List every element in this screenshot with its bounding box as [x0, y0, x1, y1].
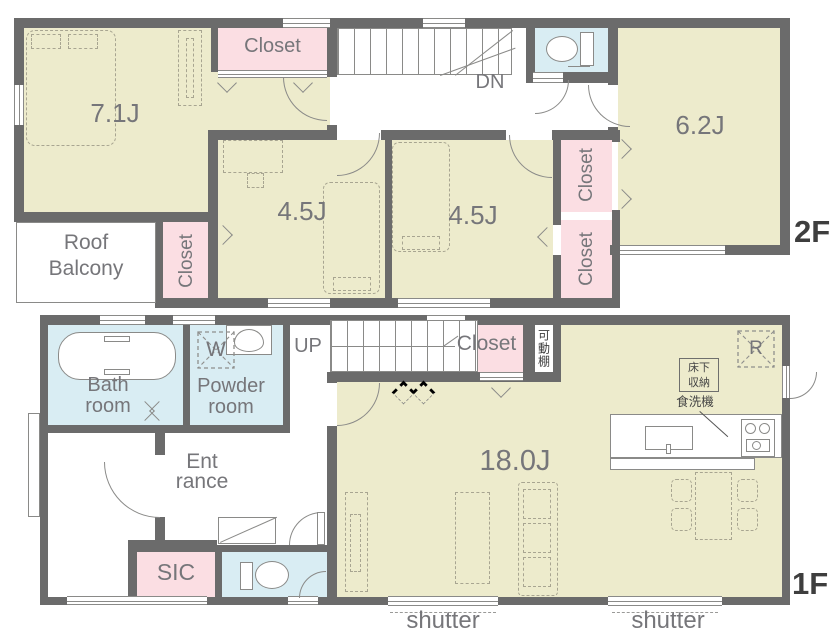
opening: [67, 596, 207, 605]
wall-segment: [208, 298, 268, 308]
floor-tag-2f: 2F: [794, 214, 830, 250]
sofa-cushion: [523, 489, 551, 519]
dining-chair: [671, 508, 692, 531]
refrigerator-label: R: [737, 330, 775, 368]
toilet-icon: [580, 32, 594, 66]
pillow: [333, 277, 371, 291]
dining-chair: [737, 508, 758, 531]
door-arc: [588, 85, 630, 127]
window: [100, 315, 145, 325]
closet-label: Closet: [450, 333, 523, 355]
washing-machine-icon: W: [197, 331, 235, 369]
chair: [247, 173, 264, 188]
wall-segment: [208, 130, 337, 140]
stairs-up-label: UP: [288, 336, 328, 357]
shutter-label-right: shutter: [625, 608, 711, 633]
room-label-4-5j-a: 4.5J: [247, 198, 357, 225]
wall-segment: [128, 540, 217, 552]
dishwasher-label: 食洗機: [668, 396, 722, 409]
shutter-window: [608, 596, 722, 606]
roof-balcony-label: Roof Balcony: [20, 230, 152, 282]
door-arc: [104, 462, 160, 518]
sink-bowl: [234, 329, 264, 352]
low-table: [455, 492, 490, 584]
window: [173, 315, 215, 325]
floor-tag-1f: 1F: [792, 566, 828, 602]
kitchen-counter-edge: [610, 458, 755, 470]
washer-label: W: [197, 331, 235, 369]
room-label-4-5j-b: 4.5J: [418, 202, 528, 229]
movable-shelf-label: 可動棚: [535, 325, 553, 372]
wall-segment: [722, 597, 790, 605]
wall-segment: [215, 552, 222, 597]
wall-segment: [327, 372, 561, 382]
window: [398, 298, 490, 308]
wall-segment: [40, 315, 48, 605]
entrance-label: Ent rance: [170, 452, 234, 492]
door-leaf: [317, 512, 325, 545]
toilet-icon: [255, 561, 289, 589]
refrigerator-icon: R: [737, 330, 775, 368]
wall-segment: [14, 18, 790, 28]
closet-label: Closet: [218, 36, 327, 57]
wall-segment: [155, 433, 165, 455]
closet-label-vertical: Closet: [561, 138, 612, 212]
wall-segment: [211, 28, 218, 72]
pillow: [402, 236, 440, 250]
stairs-down-label: DN: [470, 72, 510, 93]
dining-chair: [671, 479, 692, 502]
stair-edge-line: [337, 74, 457, 75]
powder-room-label: Powder room: [185, 376, 277, 418]
dining-table: [695, 472, 732, 540]
toilet-icon: [546, 36, 578, 62]
wall-segment: [782, 315, 790, 368]
wall-segment: [490, 298, 620, 308]
kitchen-faucet: [666, 444, 671, 454]
floor-plan: DN Roof Balcony 7.1J Closet 6.2J 4.5J 4.…: [0, 0, 840, 643]
wall-segment: [385, 140, 392, 308]
wall-segment: [40, 425, 290, 433]
closet-label-vertical: Closet: [163, 222, 210, 300]
door-arc: [790, 372, 817, 399]
wall-segment: [327, 372, 337, 383]
bathroom-label: Bath room: [58, 375, 158, 417]
wall-segment: [330, 298, 398, 308]
sic-label: SIC: [137, 560, 215, 584]
wardrobe-rail: [186, 38, 194, 98]
pillow: [31, 34, 61, 49]
wall-segment: [608, 18, 618, 85]
underfloor-storage-box: 床下 収納: [679, 358, 719, 392]
wall-segment: [215, 545, 327, 552]
window: [14, 85, 24, 125]
stove-burner: [752, 441, 761, 450]
desk: [223, 140, 283, 173]
window: [283, 18, 330, 28]
wall-segment: [381, 130, 506, 140]
wall-segment: [780, 18, 790, 255]
shutter-window: [388, 596, 498, 606]
porch: [28, 413, 40, 517]
wall-segment: [612, 210, 620, 308]
toilet-icon: [568, 66, 590, 67]
room-label-7-1j: 7.1J: [60, 100, 170, 127]
door-arc: [535, 80, 569, 114]
wall-segment: [40, 597, 67, 605]
window: [268, 298, 330, 308]
dining-chair: [737, 479, 758, 502]
window: [423, 18, 465, 28]
wall-segment: [128, 552, 137, 597]
wall-segment: [318, 597, 388, 605]
bathtub-handle: [104, 336, 130, 342]
stove-burner: [745, 423, 756, 434]
ldk-label: 18.0J: [460, 446, 570, 476]
toilet-icon: [240, 562, 253, 590]
wall-segment: [782, 396, 790, 605]
wall-segment: [14, 212, 218, 222]
sofa-cushion: [523, 557, 551, 587]
door-opening: [782, 366, 790, 398]
sofa-cushion: [523, 523, 551, 553]
tv: [350, 514, 361, 572]
wall-segment: [523, 315, 535, 372]
wall-segment: [155, 222, 163, 308]
wall-segment: [207, 597, 288, 605]
wall-segment: [498, 597, 608, 605]
wall-segment: [327, 426, 337, 597]
window: [620, 245, 725, 255]
pillow: [68, 34, 98, 49]
wall-segment: [553, 315, 561, 372]
stove-burner: [759, 423, 770, 434]
shutter-label-left: shutter: [400, 608, 486, 633]
closet-label-vertical: Closet: [561, 220, 612, 298]
room-label-6-2j: 6.2J: [645, 112, 755, 139]
stair-center-line: [332, 346, 455, 347]
wall-segment: [553, 140, 561, 225]
